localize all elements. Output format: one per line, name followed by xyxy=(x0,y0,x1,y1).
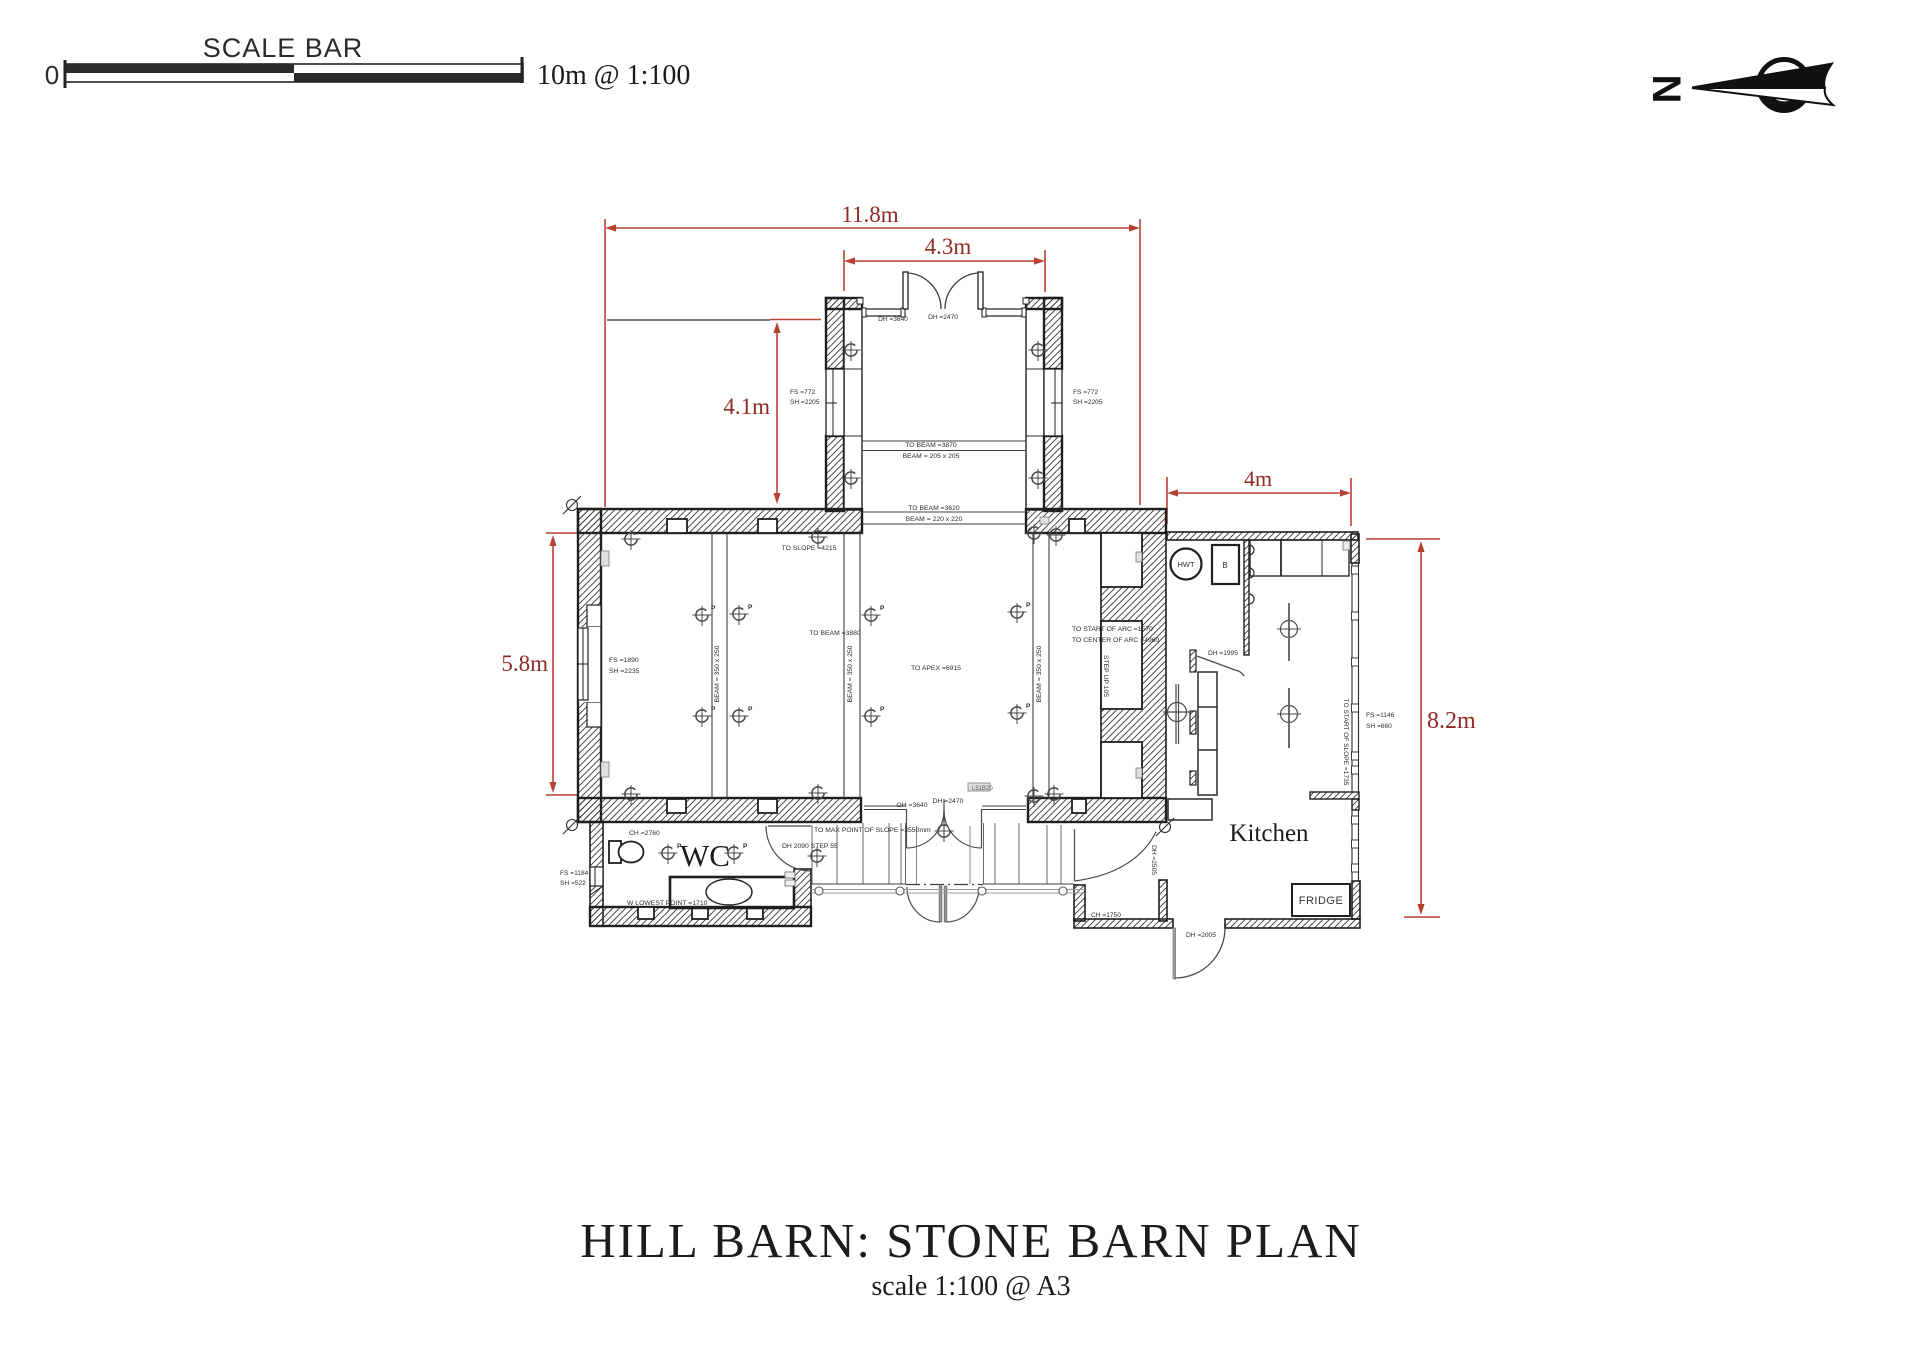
svg-text:10m @ 1:100: 10m @ 1:100 xyxy=(537,60,690,91)
svg-text:L51B20: L51B20 xyxy=(972,786,993,792)
svg-text:TO START OF ARC =1570: TO START OF ARC =1570 xyxy=(1072,626,1153,633)
svg-text:P: P xyxy=(743,843,748,850)
svg-text:5.8m: 5.8m xyxy=(501,651,548,676)
svg-text:4.3m: 4.3m xyxy=(925,234,972,259)
svg-text:4.1m: 4.1m xyxy=(723,394,770,419)
svg-text:SH =2205: SH =2205 xyxy=(790,399,820,406)
svg-text:HILL BARN: STONE BARN PLAN: HILL BARN: STONE BARN PLAN xyxy=(580,1213,1362,1268)
svg-text:SH =2205: SH =2205 xyxy=(1073,399,1103,406)
svg-text:FS =772: FS =772 xyxy=(1073,389,1098,396)
svg-text:WC: WC xyxy=(680,838,730,873)
svg-text:P: P xyxy=(711,706,716,713)
svg-text:BEAM = 350 x 250: BEAM = 350 x 250 xyxy=(714,645,721,702)
svg-text:BEAM = 350 x 250: BEAM = 350 x 250 xyxy=(847,645,854,702)
svg-text:11.8m: 11.8m xyxy=(841,202,898,227)
svg-text:DH =1995: DH =1995 xyxy=(1208,650,1238,657)
svg-text:SH =522: SH =522 xyxy=(560,880,586,887)
svg-text:P: P xyxy=(880,605,885,612)
svg-text:STEP UP 105: STEP UP 105 xyxy=(1102,655,1109,697)
svg-text:OH =3640: OH =3640 xyxy=(896,802,927,809)
svg-text:TO SLOPE =4215: TO SLOPE =4215 xyxy=(782,545,837,552)
svg-text:N: N xyxy=(1644,75,1688,104)
svg-text:DH =2005: DH =2005 xyxy=(1186,932,1216,939)
svg-text:scale 1:100 @ A3: scale 1:100 @ A3 xyxy=(871,1271,1070,1302)
svg-text:P: P xyxy=(1026,602,1031,609)
svg-text:TO BEAM =3880: TO BEAM =3880 xyxy=(809,630,861,637)
svg-text:0: 0 xyxy=(45,60,59,90)
svg-text:DH =2470: DH =2470 xyxy=(928,314,958,321)
svg-text:SH =660: SH =660 xyxy=(1366,723,1392,730)
svg-text:TO BEAM =3620: TO BEAM =3620 xyxy=(908,505,960,512)
svg-text:TO CENTER OF ARC =4960: TO CENTER OF ARC =4960 xyxy=(1072,637,1160,644)
svg-text:P: P xyxy=(748,604,753,611)
svg-text:BEAM = 220 x 220: BEAM = 220 x 220 xyxy=(906,516,963,523)
svg-text:SCALE BAR: SCALE BAR xyxy=(203,33,364,63)
svg-text:TO BEAM =3870: TO BEAM =3870 xyxy=(905,442,957,449)
svg-text:FS =772: FS =772 xyxy=(790,389,815,396)
svg-text:TO APEX =6915: TO APEX =6915 xyxy=(911,665,961,672)
svg-text:FS =1184: FS =1184 xyxy=(560,870,589,877)
svg-text:TO START OF SLOPE =1735: TO START OF SLOPE =1735 xyxy=(1342,699,1349,786)
svg-text:DH =2505: DH =2505 xyxy=(1150,845,1157,875)
svg-text:HWT: HWT xyxy=(1177,560,1194,569)
svg-text:P: P xyxy=(711,605,716,612)
svg-text:W LOWEST POINT =1710: W LOWEST POINT =1710 xyxy=(627,900,708,907)
svg-text:CH =1750: CH =1750 xyxy=(1091,912,1121,919)
svg-text:SH =2235: SH =2235 xyxy=(609,668,640,675)
svg-text:BEAM = 205 x 205: BEAM = 205 x 205 xyxy=(903,453,960,460)
svg-text:P: P xyxy=(748,706,753,713)
svg-text:Kitchen: Kitchen xyxy=(1229,820,1309,847)
svg-text:DH =2470: DH =2470 xyxy=(933,798,964,805)
svg-text:DH =3640: DH =3640 xyxy=(878,316,908,323)
svg-text:FS =1146: FS =1146 xyxy=(1366,712,1395,719)
svg-text:8.2m: 8.2m xyxy=(1427,708,1476,734)
svg-text:P: P xyxy=(880,706,885,713)
svg-text:4m: 4m xyxy=(1244,466,1272,491)
svg-text:BEAM = 350 x 250: BEAM = 350 x 250 xyxy=(1036,645,1043,702)
svg-text:TO MAX POINT OF SLOPE =3550mm: TO MAX POINT OF SLOPE =3550mm xyxy=(814,827,931,834)
svg-text:B: B xyxy=(1222,561,1227,570)
svg-text:CH =2760: CH =2760 xyxy=(629,830,660,837)
svg-text:FRIDGE: FRIDGE xyxy=(1299,895,1344,907)
svg-text:DH 2090 STEP 55: DH 2090 STEP 55 xyxy=(782,843,838,850)
svg-text:P: P xyxy=(1026,703,1031,710)
svg-text:FS =1890: FS =1890 xyxy=(609,657,639,664)
